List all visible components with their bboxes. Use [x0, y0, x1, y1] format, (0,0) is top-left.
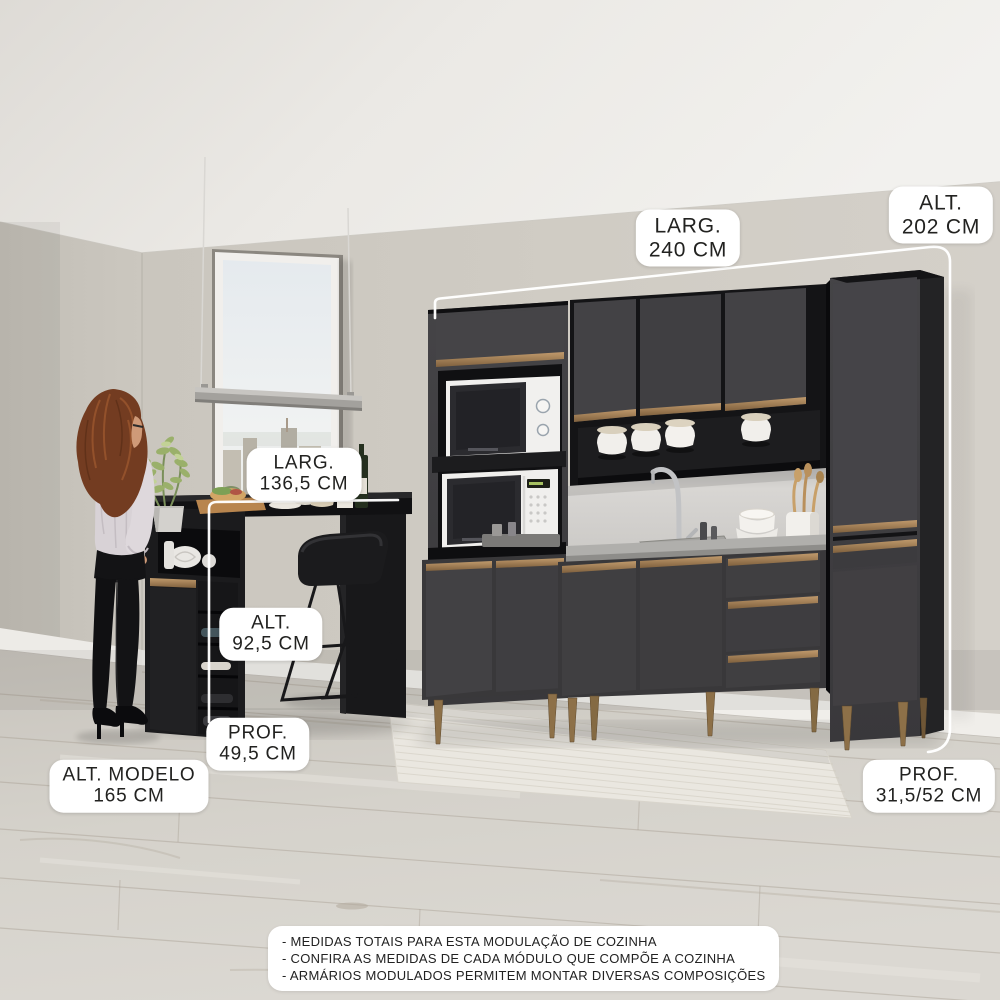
measurement-label-kitchen-width: LARG. 240 CM — [636, 209, 740, 266]
measurement-value: 136,5 CM — [260, 474, 349, 495]
measurement-label-table-width: LARG. 136,5 CM — [247, 448, 362, 501]
measurement-label-kitchen-height: ALT. 202 CM — [889, 186, 993, 243]
measurement-value: 92,5 CM — [232, 634, 309, 655]
measurement-value: 49,5 CM — [219, 744, 296, 765]
scene-render — [0, 0, 1000, 1000]
drawer-stack — [726, 552, 820, 688]
measurement-value: 165 CM — [62, 786, 195, 807]
measurement-title: ALT. — [232, 613, 309, 634]
measurement-title: PROF. — [219, 723, 296, 744]
note-line: - MEDIDAS TOTAIS PARA ESTA MODULAÇÃO DE … — [282, 933, 765, 950]
measurement-title: LARG. — [649, 214, 727, 238]
measurement-title: ALT. MODELO — [62, 765, 195, 786]
measurement-label-table-height: ALT. 92,5 CM — [219, 608, 322, 661]
microwave-top — [446, 376, 560, 461]
note-line: - ARMÁRIOS MODULADOS PERMITEM MONTAR DIV… — [282, 967, 765, 984]
note-line: - CONFIRA AS MEDIDAS DE CADA MÓDULO QUE … — [282, 950, 765, 967]
kitchen-cabinet-set — [422, 270, 972, 750]
left-tower-cabinet — [422, 301, 568, 706]
measurement-value: 31,5/52 CM — [876, 786, 982, 807]
sink-base-cabinet — [558, 550, 826, 698]
product-scene: LARG. 240 CM ALT. 202 CM LARG. 136,5 CM … — [0, 0, 1000, 1000]
measurement-title: PROF. — [876, 765, 982, 786]
measurement-title: ALT. — [902, 191, 980, 215]
measurement-value: 202 CM — [902, 215, 980, 239]
upper-cabinets — [570, 284, 826, 497]
notes-box: - MEDIDAS TOTAIS PARA ESTA MODULAÇÃO DE … — [268, 926, 779, 991]
tall-cabinet — [826, 270, 944, 742]
measurement-label-kitchen-depth: PROF. 31,5/52 CM — [863, 760, 995, 813]
measurement-value: 240 CM — [649, 238, 727, 262]
measurement-label-table-depth: PROF. 49,5 CM — [206, 718, 309, 771]
measurement-title: LARG. — [260, 453, 349, 474]
measurement-label-model-height: ALT. MODELO 165 CM — [49, 760, 208, 813]
